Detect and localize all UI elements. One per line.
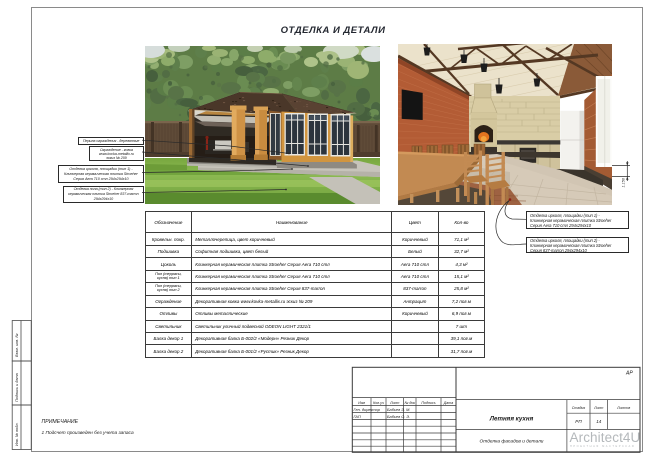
svg-text:Листов: Листов xyxy=(616,406,630,410)
svg-text:Стадия: Стадия xyxy=(572,406,586,410)
svg-text:Летняя кухня: Летняя кухня xyxy=(489,416,534,423)
svg-text:АР: АР xyxy=(625,371,633,377)
svg-text:РП: РП xyxy=(575,419,582,424)
svg-text:ПРОЕКТНАЯ МАСТЕРСКАЯ: ПРОЕКТНАЯ МАСТЕРСКАЯ xyxy=(570,444,635,448)
svg-text:Изм: Изм xyxy=(358,401,365,405)
svg-text:Подпись: Подпись xyxy=(421,401,435,405)
svg-text:ГАП: ГАП xyxy=(354,414,361,419)
svg-text:14: 14 xyxy=(596,419,602,424)
svg-text:Бабьев Э. М.: Бабьев Э. М. xyxy=(387,407,410,412)
svg-text:Дата: Дата xyxy=(443,401,453,405)
svg-text:№ док: № док xyxy=(405,401,416,405)
svg-text:Ген. директор: Ген. директор xyxy=(354,407,381,412)
svg-text:Лист: Лист xyxy=(593,406,603,410)
svg-text:Лист: Лист xyxy=(389,401,399,405)
svg-text:Architect4U: Architect4U xyxy=(570,430,641,445)
svg-text:Отделка фасадов и детали: Отделка фасадов и детали xyxy=(480,438,544,444)
svg-text:Бабьев О. Э.: Бабьев О. Э. xyxy=(387,414,410,419)
svg-text:Кол.уч: Кол.уч xyxy=(373,401,384,405)
